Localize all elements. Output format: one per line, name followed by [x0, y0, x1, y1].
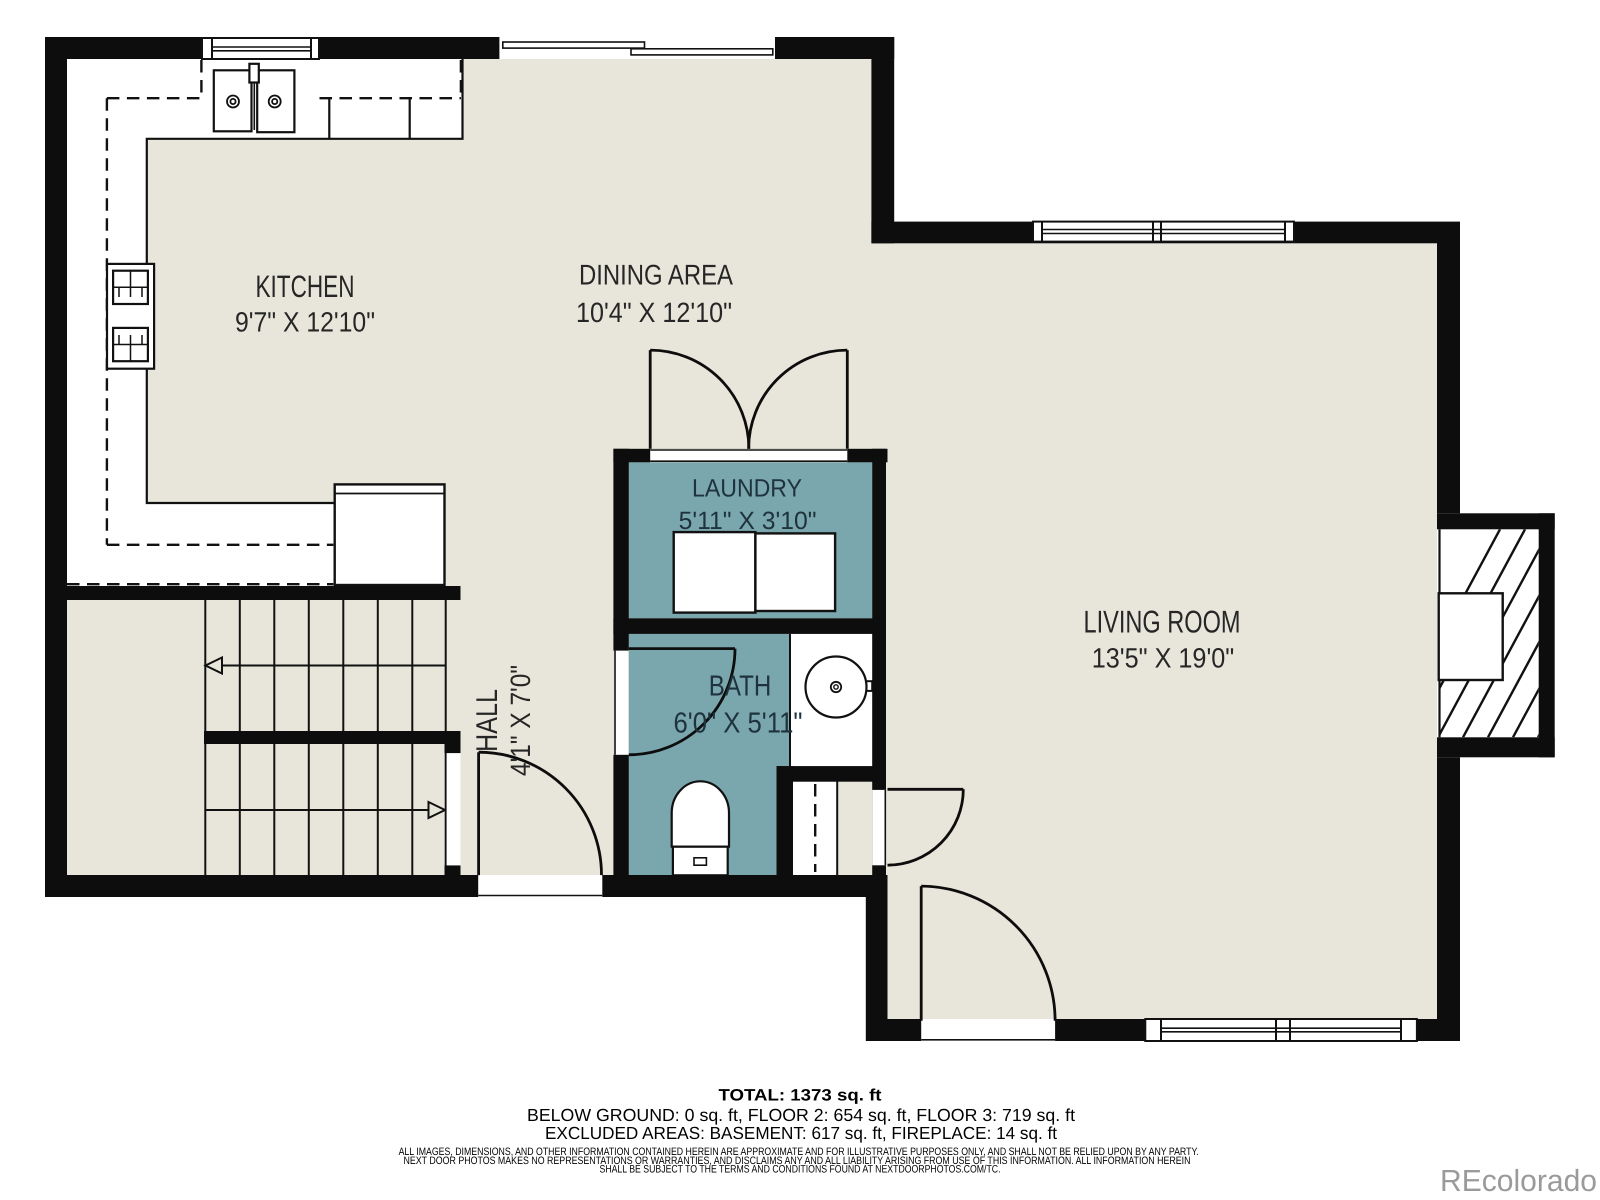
svg-text:6'0" X 5'11": 6'0" X 5'11"	[674, 708, 803, 740]
svg-text:9'7" X 12'10": 9'7" X 12'10"	[235, 307, 375, 338]
svg-text:HALL: HALL	[471, 689, 504, 752]
svg-text:13'5" X 19'0": 13'5" X 19'0"	[1092, 643, 1235, 674]
svg-text:REcolorado: REcolorado	[1440, 1164, 1597, 1198]
svg-text:DINING AREA: DINING AREA	[579, 260, 733, 292]
svg-text:TOTAL: 1373 sq. ft: TOTAL: 1373 sq. ft	[719, 1087, 883, 1105]
svg-text:BELOW GROUND: 0 sq. ft, FLOOR: BELOW GROUND: 0 sq. ft, FLOOR 2: 654 sq.…	[527, 1105, 1075, 1125]
svg-text:SHALL BE SUBJECT TO THE TERMS: SHALL BE SUBJECT TO THE TERMS AND CONDIT…	[600, 1164, 1001, 1176]
svg-text:10'4" X 12'10": 10'4" X 12'10"	[576, 297, 732, 328]
svg-text:EXCLUDED AREAS: BASEMENT: 617: EXCLUDED AREAS: BASEMENT: 617 sq. ft, FI…	[545, 1123, 1057, 1143]
svg-text:LAUNDRY: LAUNDRY	[692, 475, 802, 503]
svg-text:5'11" X 3'10": 5'11" X 3'10"	[679, 507, 817, 535]
svg-text:4'1" X 7'0": 4'1" X 7'0"	[505, 665, 536, 776]
svg-text:LIVING ROOM: LIVING ROOM	[1084, 604, 1241, 640]
svg-text:BATH: BATH	[709, 670, 772, 702]
svg-text:KITCHEN: KITCHEN	[256, 269, 355, 304]
